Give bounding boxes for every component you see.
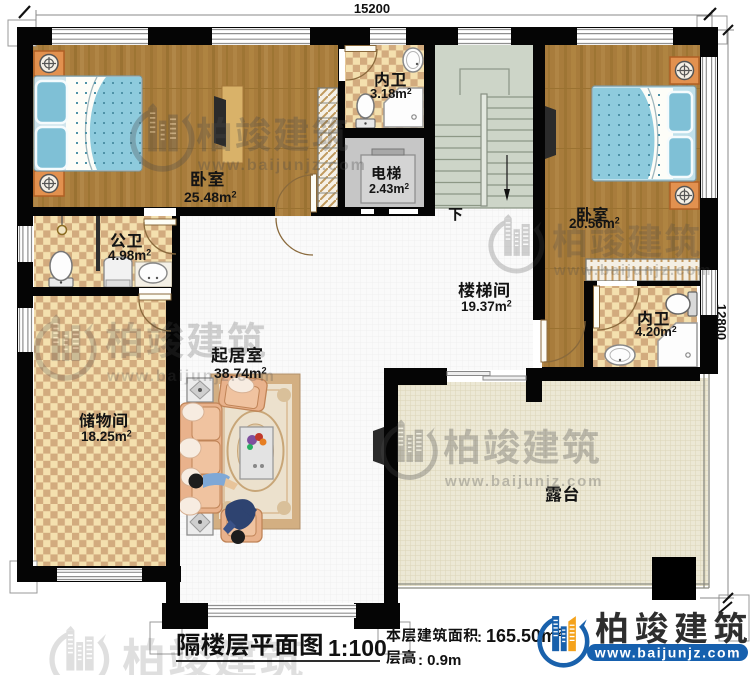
svg-text:www.baijunjz.com: www.baijunjz.com [553, 262, 712, 279]
svg-text:1:100: 1:100 [328, 635, 387, 661]
svg-text:18.25m2: 18.25m2 [81, 429, 132, 444]
svg-text:3.18m2: 3.18m2 [370, 86, 412, 101]
svg-text:20.56m2: 20.56m2 [569, 216, 620, 231]
svg-text:4.20m2: 4.20m2 [635, 324, 677, 339]
svg-text:12800: 12800 [714, 304, 729, 340]
svg-text::: : [477, 629, 482, 646]
svg-text:19.37m2: 19.37m2 [461, 299, 512, 314]
svg-text:165.50m2: 165.50m2 [486, 626, 563, 646]
svg-text:www.baijunjz.com: www.baijunjz.com [594, 645, 741, 661]
svg-text:25.48m2: 25.48m2 [184, 189, 237, 205]
svg-text:2.43m2: 2.43m2 [369, 182, 409, 196]
svg-text:www.baijunjz.com: www.baijunjz.com [197, 157, 367, 174]
svg-text:www.baijunjz.com: www.baijunjz.com [444, 473, 603, 490]
svg-text:: 0.9m: : 0.9m [418, 652, 461, 669]
svg-text:4.98m2: 4.98m2 [108, 248, 151, 263]
svg-text:15200: 15200 [354, 1, 390, 16]
svg-text:38.74m2: 38.74m2 [214, 365, 267, 381]
